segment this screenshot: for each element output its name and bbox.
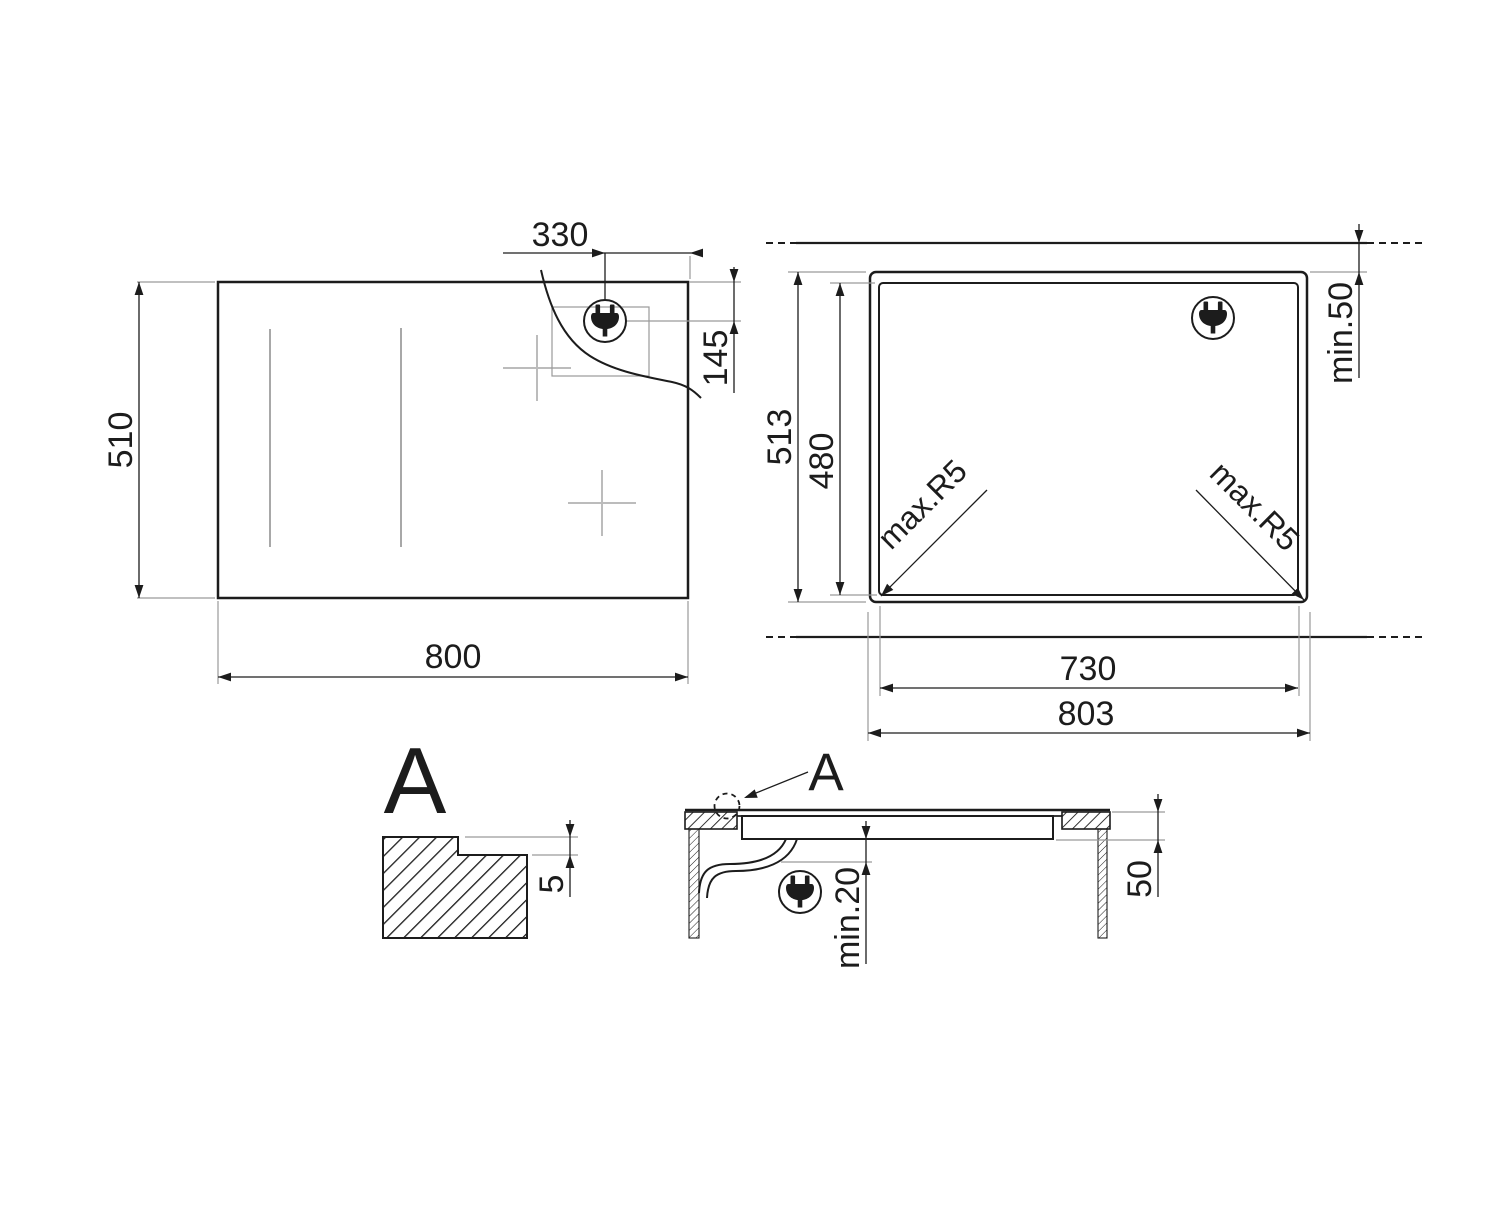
- dim-label-50: 50: [1121, 860, 1159, 898]
- corner-radius-callout-right: max.R5: [1196, 455, 1307, 604]
- cabinet-panel-right: [1098, 829, 1107, 938]
- dim-height-510: 510: [102, 282, 215, 598]
- dim-label-800: 800: [425, 638, 482, 676]
- dim-plug-offset-330: 330: [503, 216, 703, 299]
- dim-rear-clearance-min50: min.50: [1310, 224, 1367, 384]
- power-plug-icon: [779, 871, 821, 913]
- corner-radius-label-right: max.R5: [1203, 455, 1306, 558]
- section-detail-ref: A: [808, 743, 844, 802]
- dim-label-803: 803: [1058, 695, 1115, 733]
- dim-label-480: 480: [803, 433, 841, 490]
- dim-label-730: 730: [1060, 650, 1117, 688]
- zone-cross-upper: [503, 335, 571, 401]
- dim-label-min20: min.20: [829, 867, 867, 969]
- dim-label-145: 145: [697, 330, 735, 387]
- dim-label-510: 510: [102, 412, 140, 469]
- detail-a-block: [383, 837, 527, 938]
- dim-width-800: 800: [218, 601, 688, 684]
- worktop-cutout-view: 513 480 min.50 max.R5 max.R: [761, 224, 1424, 741]
- cutout-outline: [879, 283, 1298, 595]
- worktop-section-right: [1062, 812, 1110, 829]
- dim-plug-drop-145: 145: [627, 267, 741, 393]
- cabinet-panel-left: [689, 829, 699, 938]
- dim-label-min50: min.50: [1322, 282, 1360, 384]
- power-cable: [699, 839, 797, 898]
- power-plug-icon: [584, 300, 626, 342]
- technical-drawing: 510 800 330 145: [0, 0, 1500, 1200]
- detail-a-view: A 5: [383, 728, 578, 938]
- power-plug-icon: [1192, 297, 1234, 339]
- dim-cutout-height-480: 480: [803, 283, 877, 595]
- section-view: A min.20: [685, 743, 1165, 969]
- corner-radius-label-left: max.R5: [871, 453, 974, 556]
- corner-radius-callout-left: max.R5: [871, 453, 987, 600]
- dim-label-5: 5: [533, 875, 571, 894]
- installation-drawing-page: 510 800 330 145: [0, 0, 1500, 1200]
- dim-label-330: 330: [532, 216, 589, 254]
- zone-cross-lower: [568, 470, 636, 536]
- dim-cutout-width-730: 730: [880, 606, 1299, 696]
- dim-label-513: 513: [761, 409, 799, 466]
- hob-outline: [218, 282, 688, 598]
- hob-top-view: 510 800 330 145: [102, 216, 741, 684]
- detail-a-title: A: [384, 728, 447, 833]
- hob-body: [742, 816, 1053, 839]
- worktop-section-left: [685, 812, 737, 829]
- appliance-outline: [870, 272, 1307, 602]
